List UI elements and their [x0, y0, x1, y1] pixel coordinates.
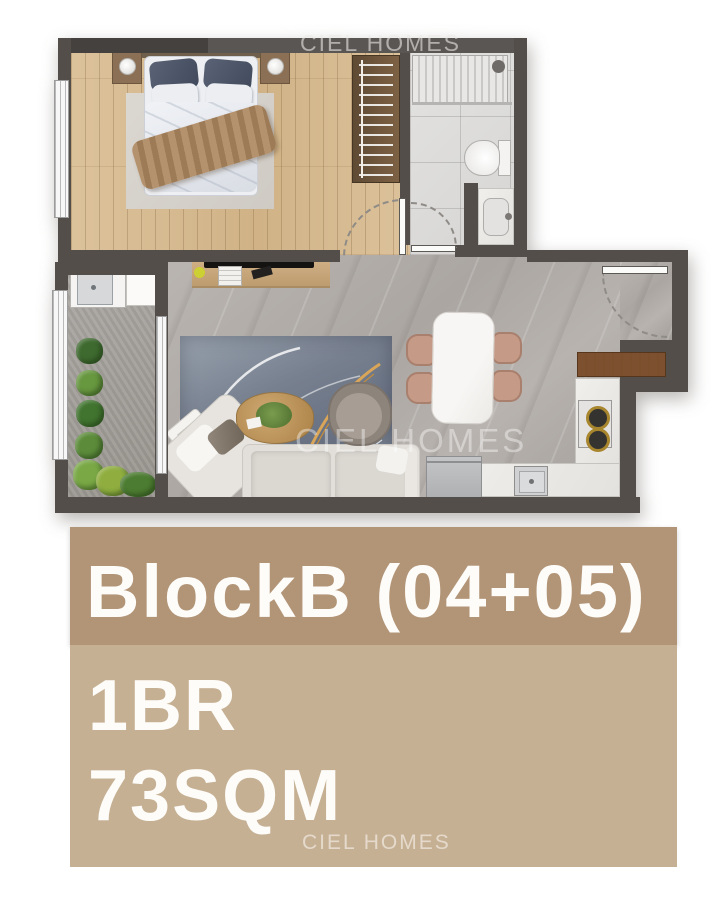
entrance-door — [602, 266, 668, 274]
info-panel-header: BlockB (04+05) — [70, 527, 677, 645]
balcony-plant — [76, 370, 103, 396]
dining-table — [431, 311, 495, 424]
wood-cabinet — [577, 352, 666, 377]
bedrooms-label: 1BR — [88, 670, 238, 742]
floor-plan: CIEL HOMES CIEL HOMES — [0, 0, 716, 520]
balcony-plant — [120, 472, 156, 497]
sink-drain — [91, 285, 96, 290]
kitchen-sink — [514, 466, 548, 496]
wardrobe — [352, 55, 400, 183]
wall-step-under — [636, 377, 666, 392]
fridge — [426, 456, 482, 498]
faucet — [505, 213, 512, 220]
block-label: BlockB (04+05) — [86, 549, 647, 634]
burner — [586, 406, 610, 430]
bedroom-door — [399, 198, 406, 255]
wall-bedroom-bottom — [58, 250, 340, 262]
wardrobe-hangers — [359, 62, 393, 176]
wall-living-top — [527, 250, 672, 262]
burner — [586, 428, 610, 452]
wall-kitchen-right — [620, 377, 636, 497]
wall-bottom — [55, 497, 640, 513]
balcony-sliding-door — [156, 316, 167, 474]
bedroom-window — [54, 80, 69, 218]
stove — [578, 400, 612, 448]
toilet — [464, 140, 500, 176]
balcony-plant — [75, 432, 103, 459]
dining-chair — [492, 332, 522, 364]
watermark-top: CIEL HOMES — [300, 30, 461, 57]
books — [218, 266, 242, 286]
floor-plan-page: CIEL HOMES CIEL HOMES BlockB (04+05) 1BR… — [0, 0, 716, 900]
watermark-bottom: CIEL HOMES — [302, 831, 451, 855]
balcony-window — [52, 290, 68, 460]
wall-sink-alcove — [464, 183, 478, 245]
info-panel-body: 1BR 73SQM CIEL HOMES — [70, 645, 677, 867]
fridge-handle — [427, 461, 481, 463]
balcony-plant — [76, 400, 104, 427]
decor-bowl — [194, 267, 205, 278]
glass-screen — [412, 102, 512, 105]
table-lamp — [119, 58, 136, 75]
table-lamp — [267, 58, 284, 75]
wardrobe-rail — [361, 60, 363, 178]
balcony-plant — [76, 338, 103, 364]
watermark-middle: CIEL HOMES — [295, 422, 527, 460]
shower-head — [492, 60, 505, 73]
bathroom-door — [411, 245, 456, 252]
wall-entry-right — [672, 250, 688, 345]
wall-step-corner — [666, 340, 688, 392]
wall-balcony-top — [55, 262, 168, 275]
wall-bathroom-bottom — [455, 245, 527, 257]
area-label: 73SQM — [88, 760, 342, 832]
dining-chair — [492, 370, 522, 402]
sink-drain — [529, 479, 534, 484]
wall-bathroom-right — [514, 38, 527, 250]
